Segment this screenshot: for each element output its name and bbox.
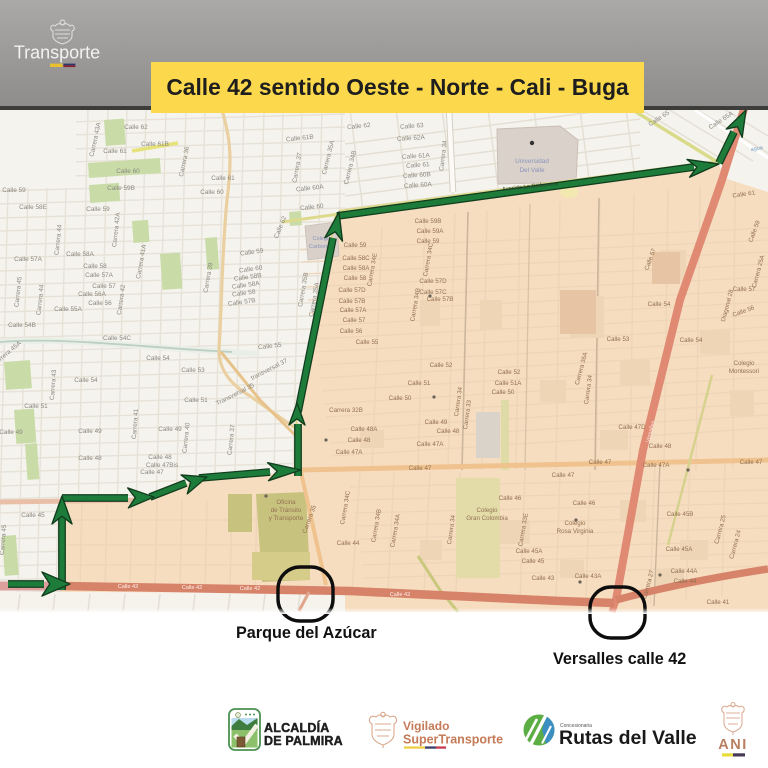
svg-text:DE PALMIRA: DE PALMIRA (264, 734, 343, 748)
svg-text:Calle 47A: Calle 47A (336, 449, 364, 456)
svg-text:Calle 42: Calle 42 (390, 592, 411, 598)
svg-text:Calle 53: Calle 53 (181, 367, 205, 374)
svg-text:Calle 46: Calle 46 (573, 500, 596, 507)
svg-text:Calle 56: Calle 56 (340, 328, 363, 335)
svg-text:Calle 48: Calle 48 (437, 428, 460, 435)
svg-text:Calle 60: Calle 60 (116, 168, 140, 175)
svg-text:Calle 59: Calle 59 (2, 187, 26, 194)
svg-text:Calle 54C: Calle 54C (103, 335, 131, 342)
svg-text:Calle 42: Calle 42 (118, 584, 139, 590)
svg-text:Calle 58C: Calle 58C (342, 255, 370, 262)
svg-text:de Tránsito: de Tránsito (271, 507, 302, 514)
svg-text:Calle 46: Calle 46 (499, 495, 522, 502)
svg-text:Calle 44: Calle 44 (674, 578, 697, 585)
svg-text:Calle 49: Calle 49 (425, 419, 448, 426)
svg-text:Calle 43A: Calle 43A (575, 573, 603, 580)
svg-text:Calle 54: Calle 54 (74, 377, 98, 384)
svg-text:Calle 47A: Calle 47A (417, 441, 445, 448)
svg-text:Calle 47A: Calle 47A (643, 462, 671, 469)
svg-text:Calle 47: Calle 47 (552, 472, 575, 479)
svg-text:Universidad: Universidad (515, 158, 549, 165)
svg-text:Calle 58A: Calle 58A (343, 265, 371, 272)
svg-text:Calle 52: Calle 52 (430, 362, 453, 369)
svg-text:Calle 42: Calle 42 (182, 585, 203, 591)
svg-text:ANI: ANI (718, 737, 747, 753)
svg-text:Calle 45A: Calle 45A (516, 548, 544, 555)
svg-text:Del Valle: Del Valle (519, 167, 545, 174)
svg-text:Calle 54: Calle 54 (648, 301, 671, 308)
svg-text:Montessori: Montessori (729, 368, 759, 375)
svg-text:Calle 47D: Calle 47D (618, 424, 646, 431)
svg-text:Calle 48: Calle 48 (649, 443, 672, 450)
svg-text:Calle 48A: Calle 48A (351, 426, 379, 433)
svg-text:Calle 54: Calle 54 (680, 337, 703, 344)
svg-text:Calle 61: Calle 61 (211, 175, 235, 182)
svg-text:Calle 48: Calle 48 (148, 454, 172, 461)
svg-text:Calle 57A: Calle 57A (340, 307, 368, 314)
svg-text:Calle 45A: Calle 45A (666, 546, 694, 553)
svg-text:Calle 57A: Calle 57A (14, 256, 42, 263)
svg-text:Calle 61B: Calle 61B (141, 141, 169, 148)
svg-text:Calle 52: Calle 52 (498, 369, 521, 376)
svg-text:Calle 58: Calle 58 (83, 263, 107, 270)
svg-text:Calle 49: Calle 49 (0, 429, 23, 436)
svg-text:Calle 57D: Calle 57D (419, 278, 447, 285)
svg-text:Calle 51: Calle 51 (408, 380, 431, 387)
svg-text:Calle 51: Calle 51 (24, 403, 48, 410)
svg-text:Calle 55A: Calle 55A (54, 306, 82, 313)
svg-text:Calle 44: Calle 44 (337, 540, 360, 547)
svg-text:Oficina: Oficina (276, 499, 296, 506)
svg-text:Vigilado: Vigilado (403, 719, 449, 733)
svg-text:Calle 58A: Calle 58A (66, 251, 94, 258)
svg-text:Calle 45B: Calle 45B (667, 511, 694, 518)
svg-text:Calle 44A: Calle 44A (671, 568, 699, 575)
svg-text:Calle 57B: Calle 57B (339, 298, 366, 305)
svg-text:Calle 41: Calle 41 (707, 599, 730, 606)
svg-text:Calle 59B: Calle 59B (107, 185, 135, 192)
svg-text:Calle 43: Calle 43 (532, 575, 555, 582)
svg-text:Gran Colombia: Gran Colombia (466, 515, 508, 522)
svg-text:Colegio: Colegio (734, 360, 756, 367)
svg-text:Calle 47: Calle 47 (740, 459, 763, 466)
svg-text:SuperTransporte: SuperTransporte (403, 733, 503, 747)
svg-text:Calle 61: Calle 61 (103, 148, 127, 155)
svg-text:Calle 60: Calle 60 (200, 189, 224, 196)
svg-text:Calle 51A: Calle 51A (495, 380, 523, 387)
svg-text:Calle 51: Calle 51 (184, 397, 208, 404)
svg-text:Calle 42: Calle 42 (240, 586, 261, 592)
svg-text:Rosa Virginia: Rosa Virginia (557, 528, 594, 535)
svg-text:ALCALDÍA: ALCALDÍA (264, 720, 329, 735)
svg-text:Calle 54: Calle 54 (146, 355, 170, 362)
svg-text:Calle 47: Calle 47 (409, 465, 432, 472)
svg-text:Calle 58: Calle 58 (344, 275, 367, 282)
svg-text:Calle 49: Calle 49 (158, 426, 182, 433)
svg-text:Calle 57: Calle 57 (92, 283, 116, 290)
svg-text:Rutas del Valle: Rutas del Valle (559, 727, 697, 749)
svg-text:Calle 58E: Calle 58E (19, 204, 47, 211)
svg-text:Transporte: Transporte (14, 43, 100, 63)
svg-text:Calle 48: Calle 48 (78, 455, 102, 462)
svg-text:Carrera 32B: Carrera 32B (329, 407, 363, 414)
svg-text:Calle 50: Calle 50 (389, 395, 412, 402)
svg-text:Calle 57D: Calle 57D (338, 287, 366, 294)
svg-text:Calle 59B: Calle 59B (415, 218, 442, 225)
svg-text:Calle 55: Calle 55 (356, 339, 379, 346)
svg-text:Calle 45: Calle 45 (21, 512, 45, 519)
svg-text:Calle 59: Calle 59 (86, 206, 110, 213)
svg-text:Calle 59A: Calle 59A (417, 228, 445, 235)
svg-text:Calle 49: Calle 49 (78, 428, 102, 435)
svg-text:Calle 56A: Calle 56A (78, 291, 106, 298)
svg-text:Calle 59: Calle 59 (344, 242, 367, 249)
svg-text:Calle 45: Calle 45 (522, 558, 545, 565)
svg-text:Calle 57C: Calle 57C (419, 289, 447, 296)
svg-text:Calle 54B: Calle 54B (8, 322, 36, 329)
svg-text:Calle 53: Calle 53 (607, 336, 630, 343)
svg-text:Calle 48: Calle 48 (348, 437, 371, 444)
svg-text:Colegio: Colegio (477, 507, 499, 514)
svg-text:Calle 47Bis: Calle 47Bis (146, 462, 178, 469)
svg-text:Calle 56: Calle 56 (88, 300, 112, 307)
svg-text:Calle 47: Calle 47 (589, 459, 612, 466)
svg-text:y Transporte: y Transporte (269, 515, 304, 522)
svg-text:Calle 50: Calle 50 (492, 389, 515, 396)
svg-text:Calle 47: Calle 47 (140, 469, 164, 476)
svg-text:Calle 57: Calle 57 (343, 317, 366, 324)
svg-text:Calle 57A: Calle 57A (85, 272, 113, 279)
svg-text:Calle 62: Calle 62 (124, 124, 148, 131)
